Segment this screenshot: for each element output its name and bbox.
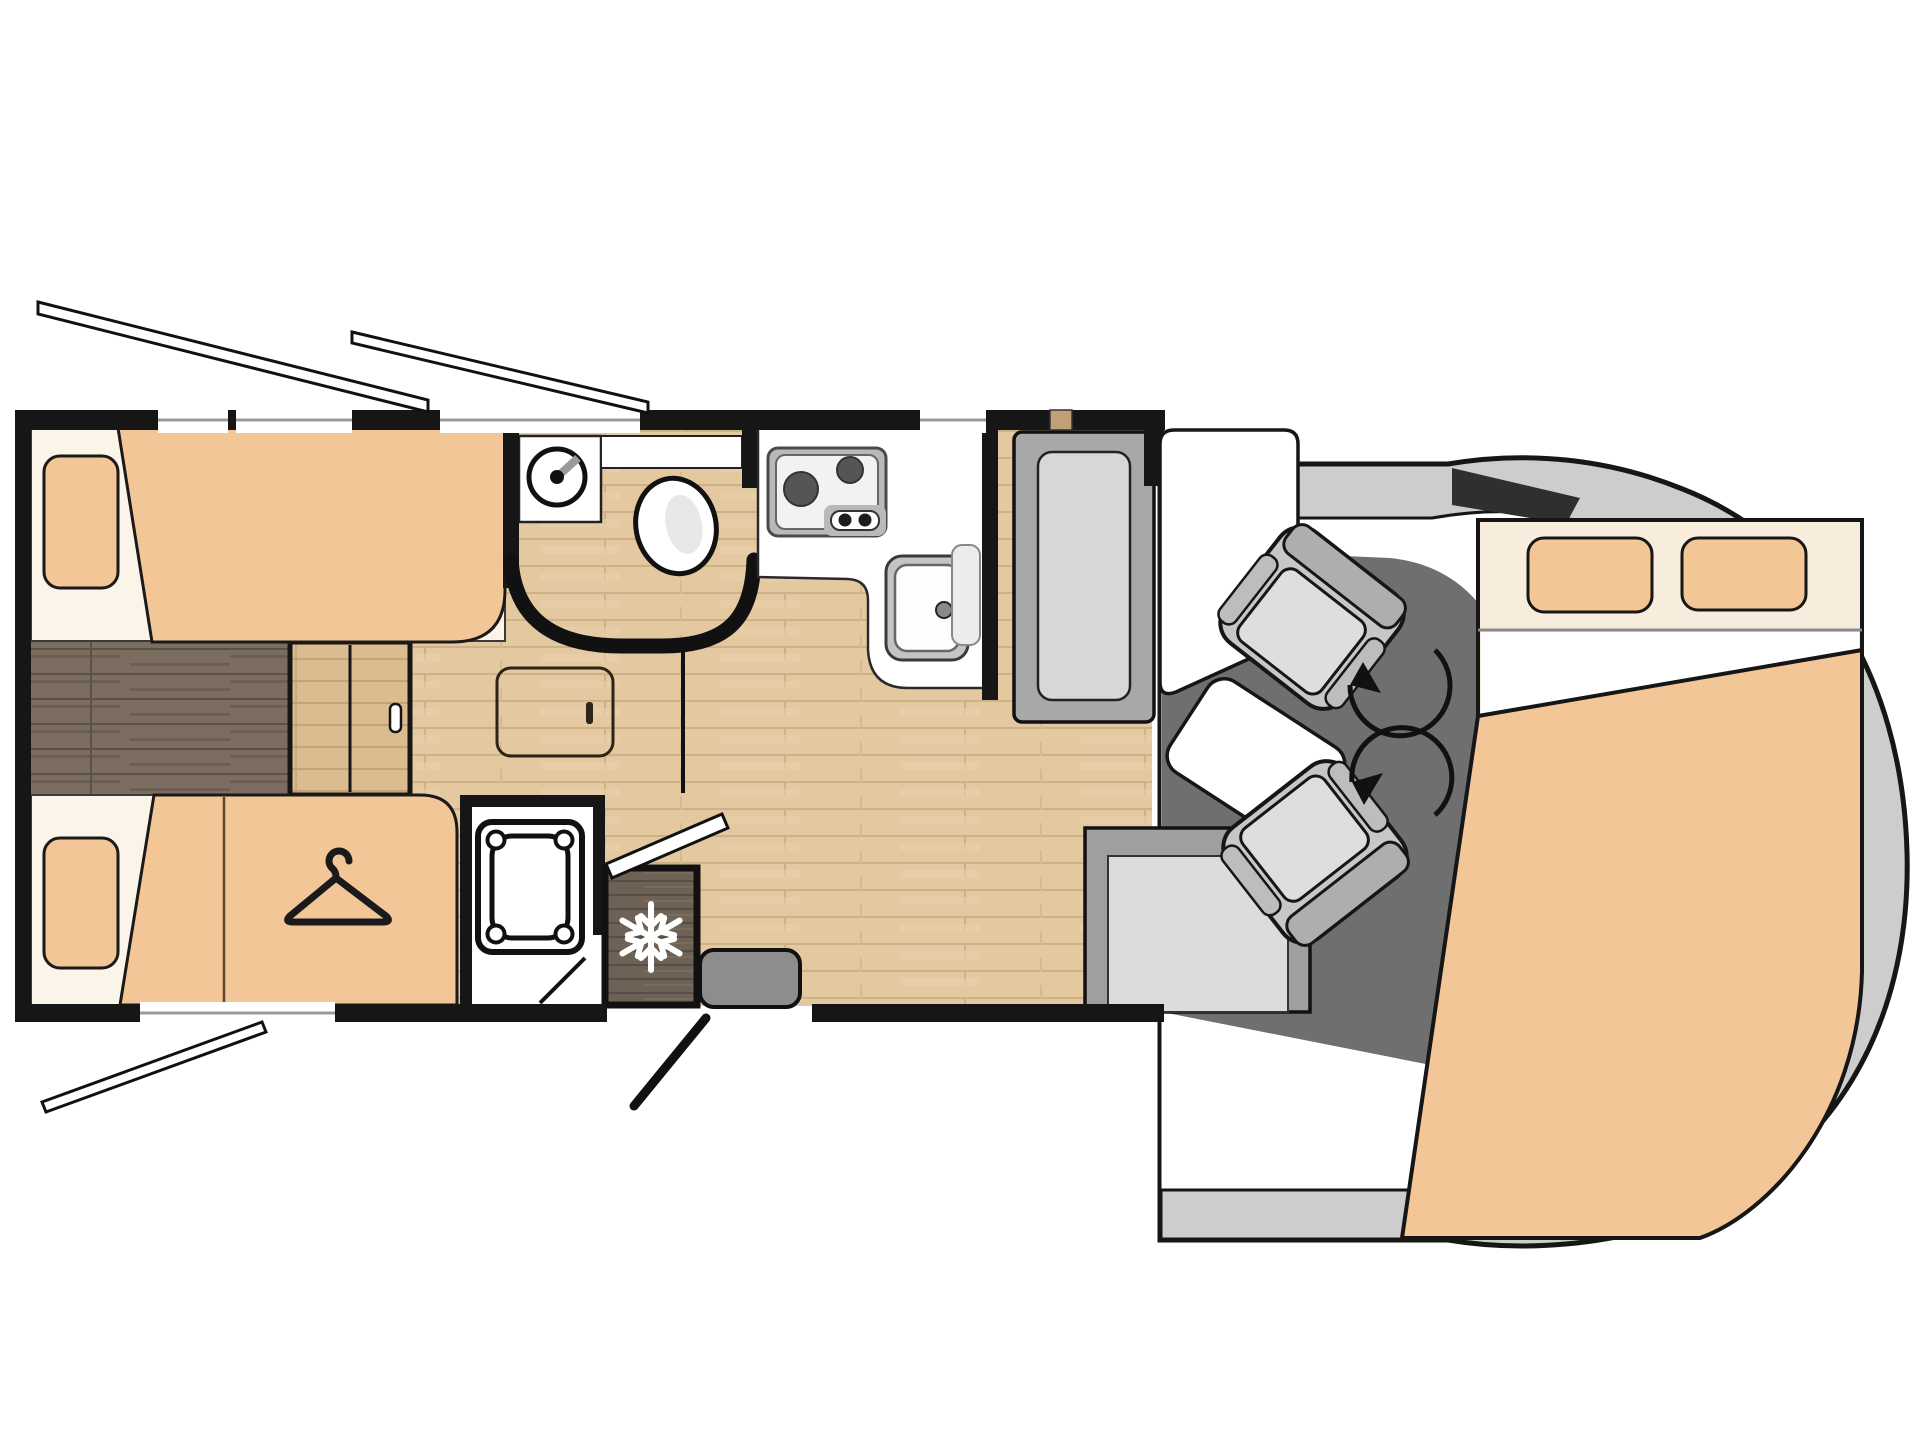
rear-bed-bottom [31, 795, 457, 1005]
shower [460, 795, 605, 1005]
floorplan-svg [0, 0, 1920, 1440]
bed-steps [290, 642, 410, 795]
pillow [44, 456, 118, 588]
pillow [1528, 538, 1652, 612]
wall-cushion [952, 545, 980, 645]
entry-mat [700, 950, 800, 1007]
partition-wall [982, 426, 998, 700]
pillow [1682, 538, 1806, 610]
dinette-bench [1014, 432, 1154, 722]
walkway [31, 642, 290, 795]
pillow [44, 838, 118, 968]
rear-bed-top [31, 428, 505, 642]
fridge [605, 868, 697, 1005]
floorplan-canvas [0, 0, 1920, 1440]
gas-hob [768, 448, 886, 536]
